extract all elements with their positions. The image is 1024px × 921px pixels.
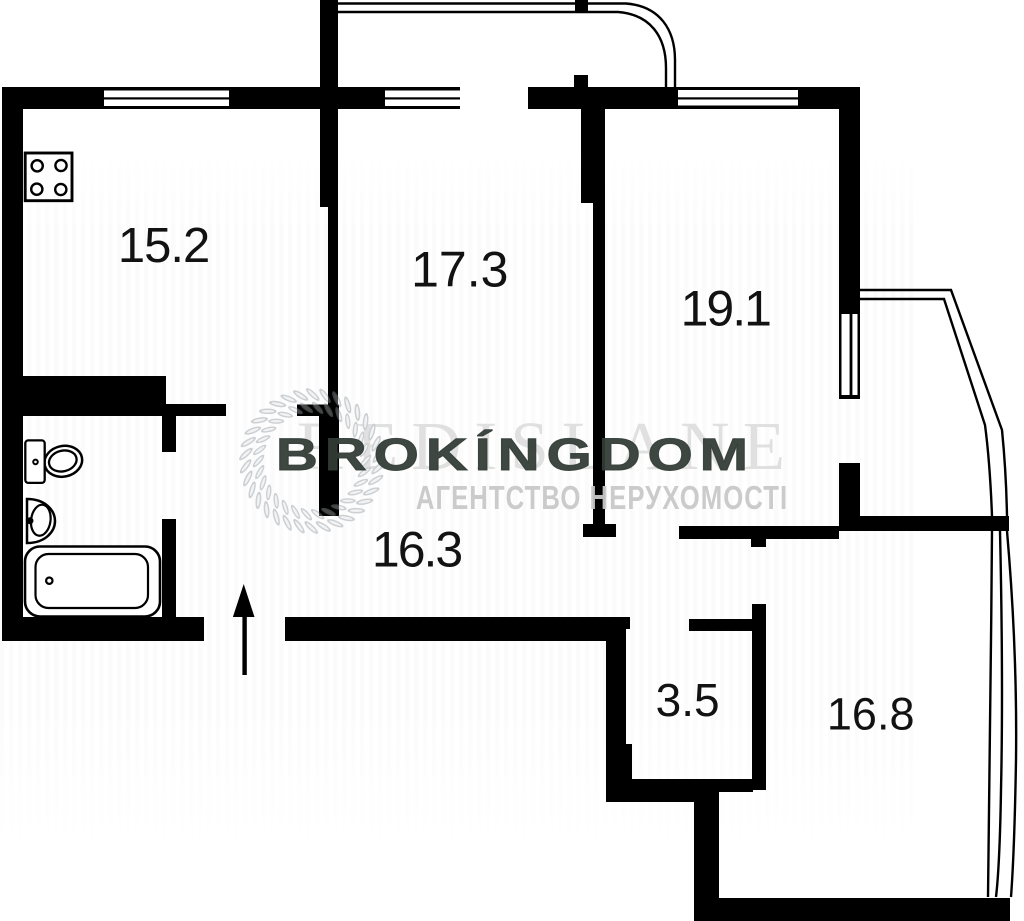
svg-text:АГЕНТСТВО НЕРУХОМОСТІ: АГЕНТСТВО НЕРУХОМОСТІ [416,480,787,517]
svg-text:3.5: 3.5 [656,674,720,726]
svg-text:19.1: 19.1 [681,280,771,336]
svg-text:16.3: 16.3 [372,522,462,578]
svg-text:15.2: 15.2 [118,219,209,273]
svg-text:17.3: 17.3 [411,242,508,298]
svg-text:BROKÍNGDOM: BROKÍNGDOM [276,430,748,480]
svg-text:16.8: 16.8 [827,689,915,740]
